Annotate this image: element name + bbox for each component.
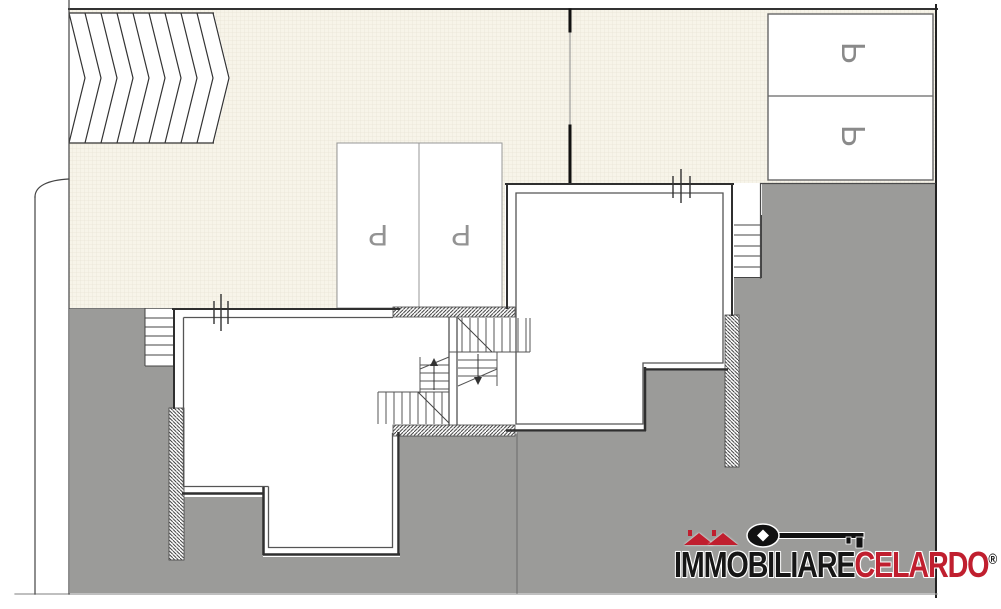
site-plan-canvas: P P P P IMMOBILIARECELARDO® [0, 0, 1001, 609]
agency-logo-text: IMMOBILIARECELARDO® [674, 540, 997, 585]
brand-name-red: CELARDO [854, 544, 988, 585]
house-chimney-icon [688, 530, 692, 536]
parking-area-upper [768, 14, 933, 180]
registered-mark: ® [988, 551, 997, 568]
parking-area-middle [337, 143, 502, 308]
exterior-stair-right-area [733, 184, 762, 278]
exterior-stair-left-area [145, 308, 173, 366]
agency-logo: IMMOBILIARECELARDO® [660, 512, 990, 592]
stair-core-footprint [393, 307, 517, 434]
slope-hatch-band [69, 13, 230, 143]
brand-name-black: IMMOBILIARE [674, 544, 854, 585]
house-chimney-icon [712, 530, 716, 536]
